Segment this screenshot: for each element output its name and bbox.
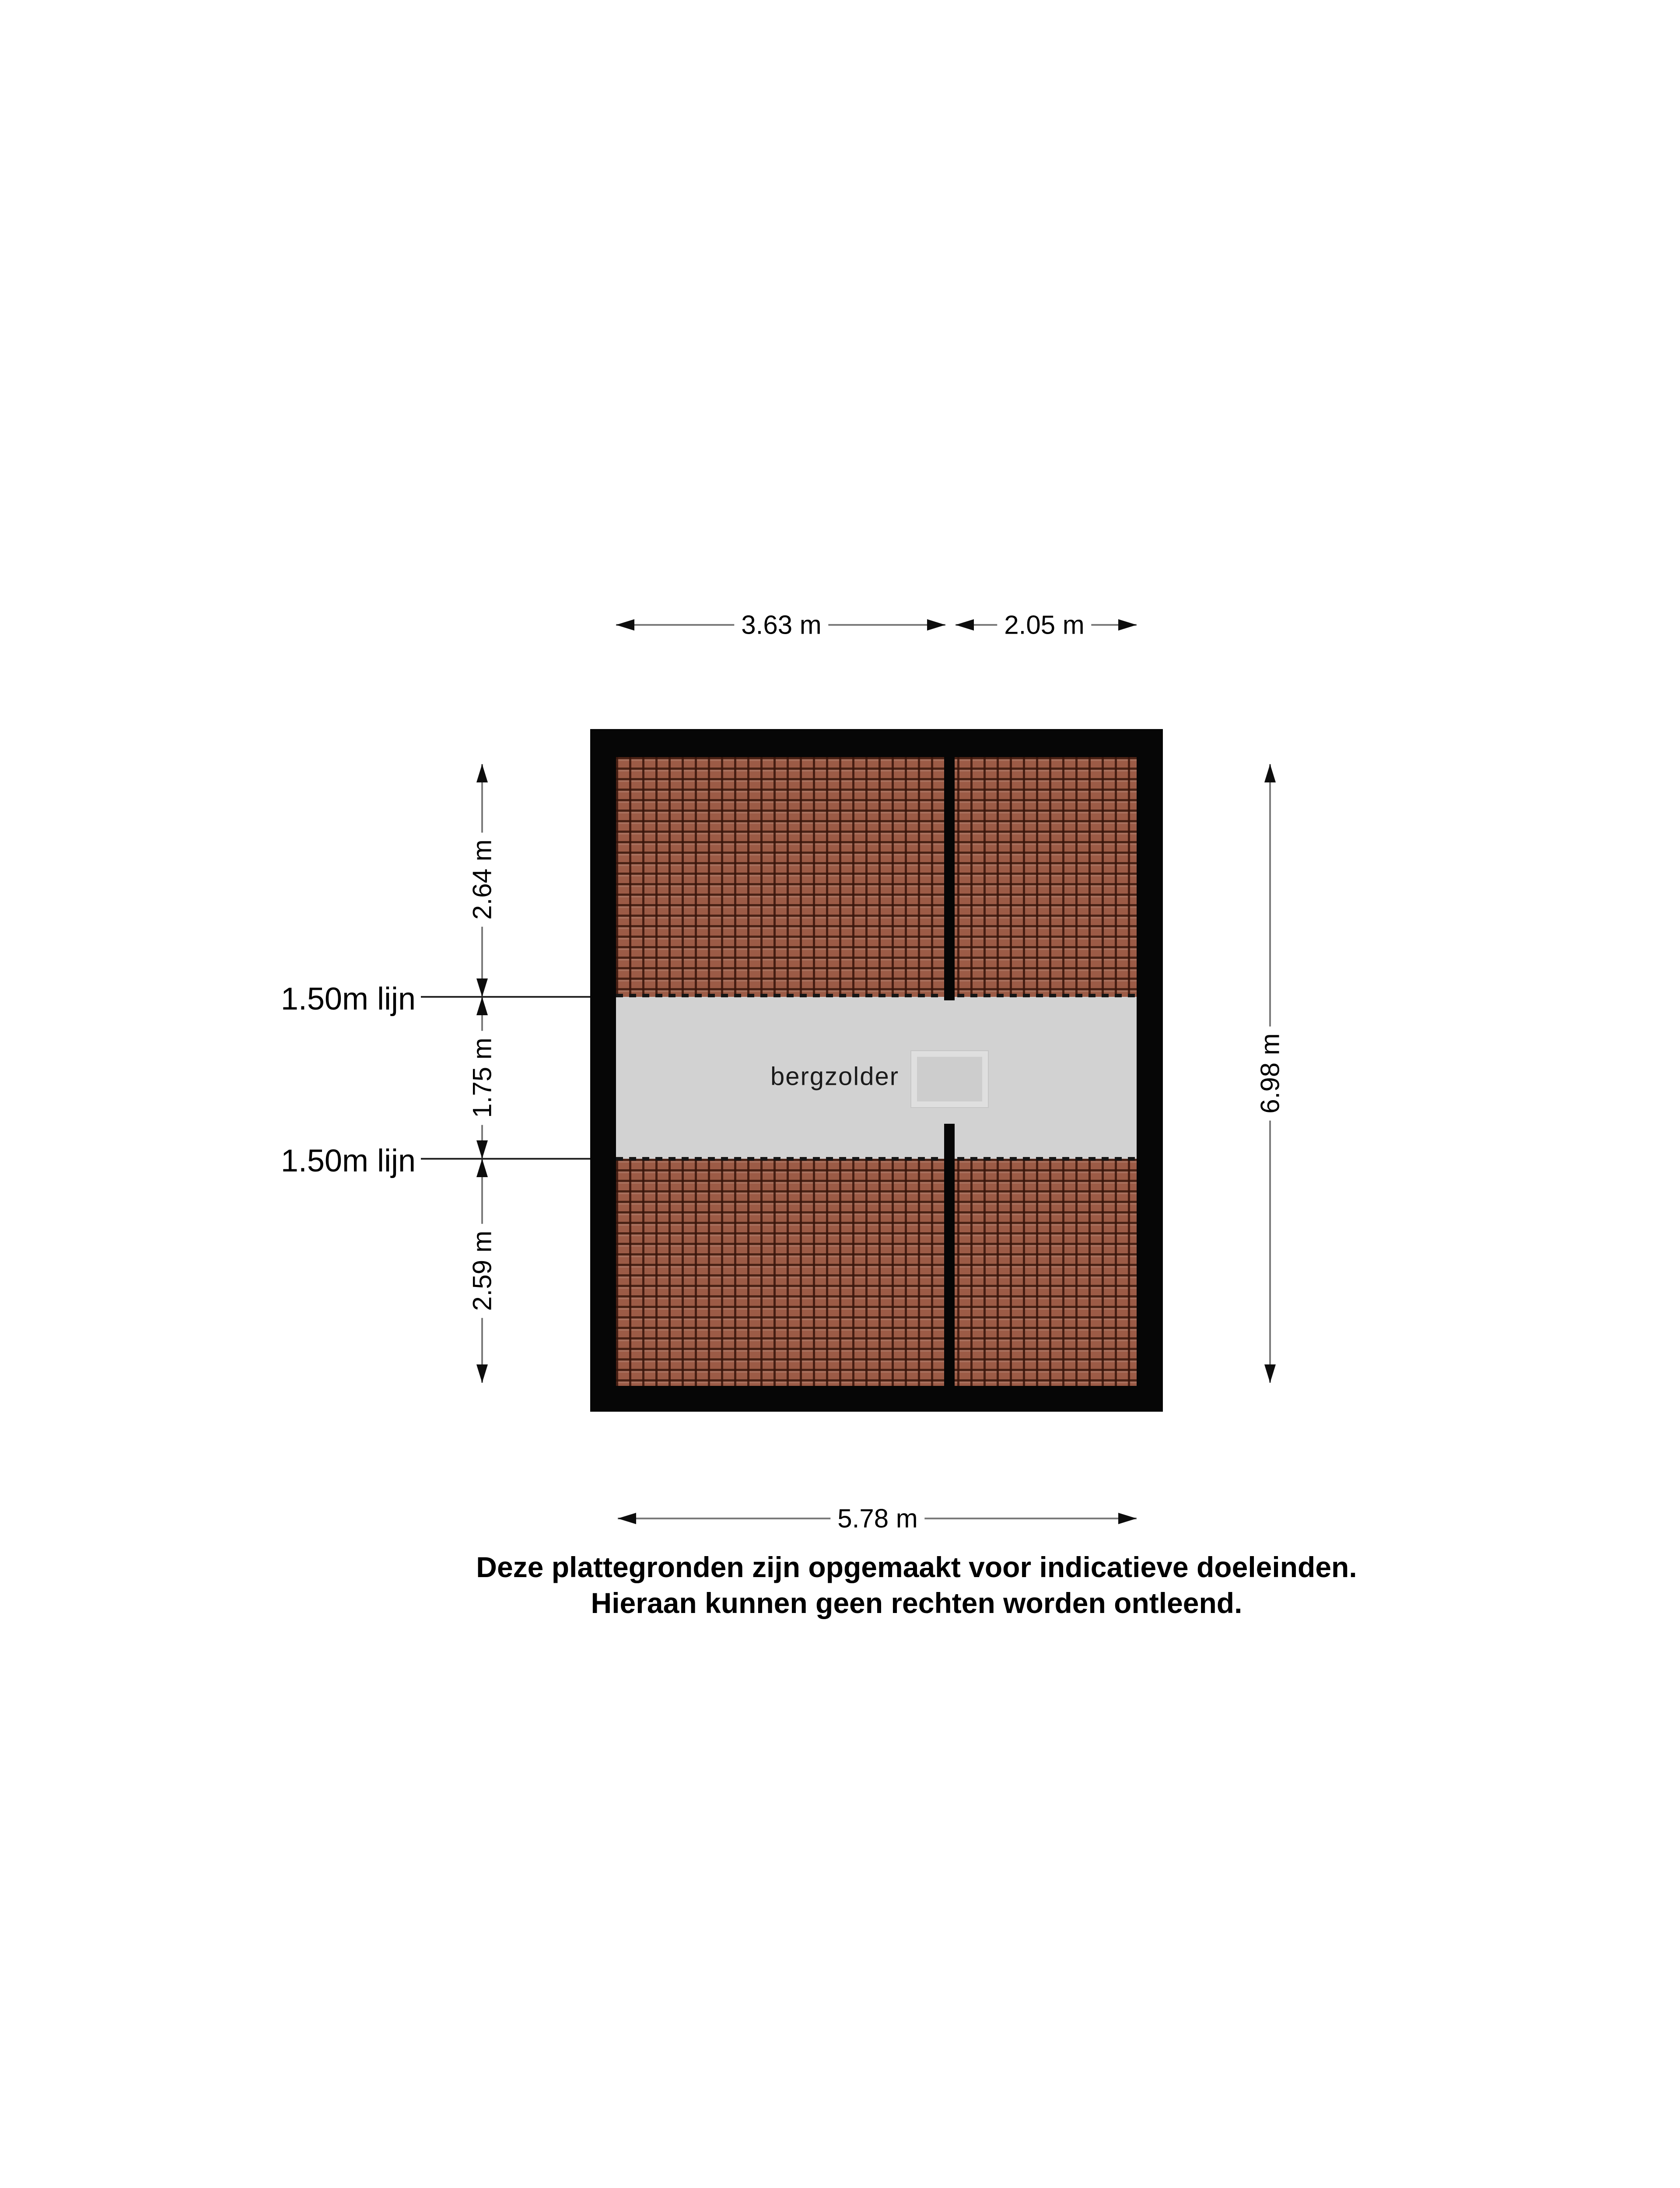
roof-divider-wall-bottom bbox=[944, 1124, 955, 1386]
arrow-down-icon bbox=[476, 1140, 488, 1159]
roof-slope-upper bbox=[616, 757, 1137, 997]
dim-label-right: 6.98 m bbox=[1254, 1026, 1286, 1120]
dim-label-top-left: 3.63 m bbox=[734, 609, 828, 641]
disclaimer-line-1: Deze plattegronden zijn opgemaakt voor i… bbox=[326, 1549, 1507, 1585]
arrow-right-icon bbox=[927, 619, 945, 631]
arrow-down-icon bbox=[1264, 1364, 1276, 1383]
height-ref-line-lower bbox=[421, 1158, 590, 1160]
arrow-up-icon bbox=[476, 997, 488, 1015]
arrow-down-icon bbox=[476, 978, 488, 997]
skylight bbox=[911, 1051, 988, 1107]
roof-slope-lower bbox=[616, 1159, 1137, 1386]
arrow-up-icon bbox=[476, 1159, 488, 1177]
arrow-down-icon bbox=[476, 1364, 488, 1383]
kneewall-dashed-line-upper bbox=[616, 994, 1137, 997]
roof-divider-wall-top bbox=[944, 757, 955, 1000]
height-ref-label-upper: 1.50m lijn bbox=[227, 981, 416, 1017]
dim-label-bottom: 5.78 m bbox=[830, 1503, 924, 1535]
floorplan-canvas: bergzolder 3.63 m 2.05 m 5.78 m 2.64 m 1… bbox=[0, 0, 1680, 2188]
arrow-right-icon bbox=[1118, 1513, 1137, 1524]
disclaimer-line-2: Hieraan kunnen geen rechten worden ontle… bbox=[326, 1585, 1507, 1621]
arrow-left-icon bbox=[616, 619, 634, 631]
arrow-up-icon bbox=[1264, 764, 1276, 782]
disclaimer: Deze plattegronden zijn opgemaakt voor i… bbox=[326, 1549, 1507, 1621]
height-ref-label-lower: 1.50m lijn bbox=[227, 1143, 416, 1179]
arrow-right-icon bbox=[1118, 619, 1137, 631]
room-label: bergzolder bbox=[770, 1062, 899, 1091]
dim-label-left-upper: 2.64 m bbox=[466, 832, 498, 926]
arrow-left-icon bbox=[618, 1513, 636, 1524]
dim-label-left-middle: 1.75 m bbox=[466, 1031, 498, 1125]
height-ref-line-upper bbox=[421, 996, 590, 998]
arrow-up-icon bbox=[476, 764, 488, 782]
kneewall-dashed-line-lower bbox=[616, 1157, 1137, 1161]
dim-label-top-right: 2.05 m bbox=[997, 609, 1091, 641]
dim-label-left-lower: 2.59 m bbox=[466, 1224, 498, 1318]
arrow-left-icon bbox=[955, 619, 974, 631]
